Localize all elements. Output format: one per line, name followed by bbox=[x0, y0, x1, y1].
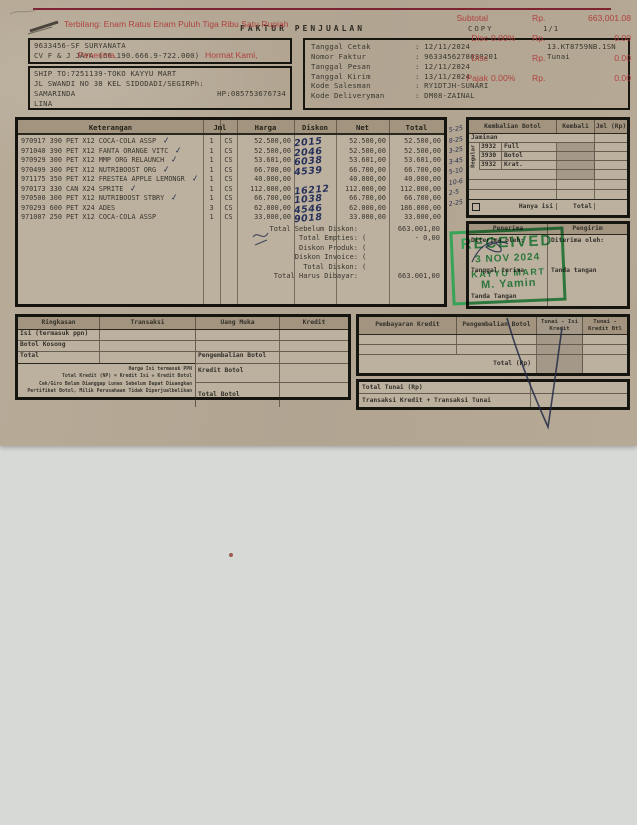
item-row: 971175 350 PET X12 FRESTEA APPLE LEMONGR… bbox=[18, 175, 444, 185]
amount-value: 0.00 bbox=[552, 73, 631, 83]
row-isi: Isi (termasuk ppn) bbox=[18, 330, 100, 340]
item-total: 186.000,00 bbox=[389, 204, 444, 214]
penerima-signoff: Penerima, bbox=[78, 50, 117, 60]
paper-speck bbox=[229, 553, 233, 557]
bottle-col-kembali: Kembali bbox=[557, 120, 595, 133]
item-unit: CS bbox=[220, 166, 237, 176]
items-rows: 970917 390 PET X12 COCA-COLA ASSP✓ 1 CS … bbox=[18, 137, 444, 223]
item-unit: CS bbox=[220, 156, 237, 166]
bottle-code: 3932 bbox=[480, 143, 502, 151]
amount-row: Pajak 0.00% Rp. 0.00 bbox=[428, 73, 633, 93]
totals-line: Diskon Invoice: ( bbox=[18, 253, 444, 263]
ringkasan-header: Ringkasan bbox=[18, 317, 100, 329]
handwritten-check: ✓ bbox=[162, 136, 171, 147]
item-row: 971040 390 PET X12 FANTA ORANGE VITC✓ 1 … bbox=[18, 147, 444, 157]
item-qty: 1 bbox=[203, 156, 220, 166]
item-row: 970500 300 PET X12 NUTRIBOOST STBRY✓ 1 C… bbox=[18, 194, 444, 204]
handwritten-check: ✓ bbox=[191, 174, 200, 185]
item-discount: 4539 bbox=[294, 166, 336, 176]
item-qty: 1 bbox=[203, 147, 220, 157]
item-unit: CS bbox=[220, 213, 237, 223]
bottle-row: 3930 Botol bbox=[480, 152, 627, 161]
col-net: Net bbox=[336, 120, 389, 133]
item-discount: 1038 bbox=[294, 194, 336, 204]
regular-group: Regular bbox=[469, 143, 480, 170]
item-qty: 1 bbox=[203, 185, 220, 195]
item-qty: 1 bbox=[203, 175, 220, 185]
col-total: Total bbox=[389, 120, 444, 133]
item-discount: 6038 bbox=[294, 156, 336, 166]
total-tunai-label: Total Tunai (Rp) bbox=[359, 382, 531, 393]
handwritten-check: ✓ bbox=[170, 155, 179, 166]
bottle-code: 3932 bbox=[480, 161, 502, 169]
item-total: 40.000,00 bbox=[389, 175, 444, 185]
item-row: 970929 300 PET X12 MMP ORG RELAUNCH✓ 1 C… bbox=[18, 156, 444, 166]
fine-print-line: Harga Isi termasuk PPN bbox=[18, 366, 192, 373]
item-price: 62.000,00 bbox=[237, 204, 294, 214]
col-diskon: Diskon bbox=[294, 120, 336, 133]
ship-phone: HP:085753676734 bbox=[217, 89, 286, 99]
footer-rule bbox=[33, 8, 611, 10]
bottle-name: Full bbox=[502, 143, 557, 151]
stamp-date: 3 NOV 2024 bbox=[453, 251, 561, 267]
bottle-col-kembalian: Kembalian Botol bbox=[469, 120, 557, 133]
items-table: Keterangan Jml Harga Diskon Net Total 97… bbox=[15, 117, 447, 307]
item-qty: 1 bbox=[203, 194, 220, 204]
item-description: 970499 300 PET X12 NUTRIBOOST ORG✓ bbox=[18, 166, 203, 176]
totals-line: Total Sebelum Diskon: 663.001,00 bbox=[18, 225, 444, 235]
item-price: 52.500,00 bbox=[237, 137, 294, 147]
totals-value: - 0,00 bbox=[370, 234, 440, 244]
stamp-received: RECEIVED bbox=[453, 232, 562, 254]
item-price: 112.000,00 bbox=[237, 185, 294, 195]
item-qty: 1 bbox=[203, 166, 220, 176]
item-total: 66.700,00 bbox=[389, 166, 444, 176]
handwritten-check: ✓ bbox=[130, 184, 139, 195]
totals-line: Total Diskon: ( bbox=[18, 263, 444, 273]
kredit-header: Kredit bbox=[280, 317, 348, 329]
handwritten-check: ✓ bbox=[170, 193, 179, 204]
bottle-total-label: Total bbox=[557, 203, 595, 211]
item-description: 970929 300 PET X12 MMP ORG RELAUNCH✓ bbox=[18, 156, 203, 166]
amount-row: Disc 0.00% Rp. 0.00 bbox=[428, 33, 633, 53]
item-price: 66.700,00 bbox=[237, 166, 294, 176]
tunai-btl-header: Tunai - Kredit Btl bbox=[583, 317, 627, 334]
totals-label: Total Sebelum Diskon: bbox=[18, 225, 358, 235]
item-row: 970173 330 CAN X24 SPRITE✓ 1 CS 112.000,… bbox=[18, 185, 444, 195]
item-unit: CS bbox=[220, 204, 237, 214]
amount-value: 0.00 bbox=[552, 33, 631, 43]
item-description: 971007 250 PET X12 COCA-COLA ASSP bbox=[18, 213, 203, 223]
amount-label: Disc bbox=[428, 33, 488, 43]
item-net: 52.500,00 bbox=[336, 147, 389, 157]
item-net: 62.000,00 bbox=[336, 204, 389, 214]
amount-label: Disc bbox=[428, 53, 488, 63]
item-total: 33.000,00 bbox=[389, 213, 444, 223]
totals-label: Total Diskon: bbox=[18, 263, 358, 273]
handwritten-discount: 9018 bbox=[294, 213, 323, 225]
bottle-name: Krat. bbox=[502, 161, 557, 169]
printed-footer: Terbilang: Enam Ratus Enam Puluh Tiga Ri… bbox=[0, 0, 633, 88]
totals-line: Diskon Produk: ( bbox=[18, 244, 444, 254]
item-qty: 1 bbox=[203, 137, 220, 147]
transaksi-label: Transaksi Kredit + Transaksi Tunai bbox=[359, 394, 531, 407]
bottle-row: 3932 Krat. bbox=[480, 161, 627, 170]
amount-row: Subtotal Rp. 663,001.08 bbox=[428, 13, 633, 33]
item-discount: 9018 bbox=[294, 213, 336, 223]
item-price: 33.000,00 bbox=[237, 213, 294, 223]
handwritten-note: 2-25 bbox=[448, 197, 467, 210]
row-total: Total bbox=[18, 352, 100, 363]
item-unit: CS bbox=[220, 185, 237, 195]
bottle-code: 3930 bbox=[480, 152, 502, 160]
item-qty: 1 bbox=[203, 213, 220, 223]
item-row: 970917 390 PET X12 COCA-COLA ASSP✓ 1 CS … bbox=[18, 137, 444, 147]
item-unit: CS bbox=[220, 175, 237, 185]
col-keterangan: Keterangan bbox=[18, 120, 203, 133]
item-unit: CS bbox=[220, 137, 237, 147]
item-unit: CS bbox=[220, 194, 237, 204]
footer-amounts: Subtotal Rp. 663,001.08 Disc 0.00% Rp. 0… bbox=[428, 13, 633, 93]
item-price: 52.500,00 bbox=[237, 147, 294, 157]
amount-label: Pajak bbox=[428, 73, 488, 83]
item-description: 970293 600 PET X24 ADES bbox=[18, 204, 203, 214]
fine-print-line: Pertifikat Botol, Milik Perusahaan Tidak… bbox=[18, 388, 192, 395]
amount-row: Disc Rp. 0.00 bbox=[428, 53, 633, 73]
fine-print-line: Total Kredit (NP) = Kredit Isi + Kredit … bbox=[18, 373, 192, 380]
hanya-isi-label: Hanya isi bbox=[481, 203, 557, 211]
credit-box: Pembayaran Kredit Pengembalian Botol Tun… bbox=[356, 314, 630, 376]
totals-label: Diskon Produk: bbox=[18, 244, 358, 254]
bottle-footer: Hanya isi Total bbox=[469, 200, 627, 213]
item-description: 970917 390 PET X12 COCA-COLA ASSP✓ bbox=[18, 137, 203, 147]
amount-value: 0.00 bbox=[552, 53, 631, 63]
totals-block: Total Sebelum Diskon: 663.001,00 Total E… bbox=[18, 225, 444, 282]
item-total: 53.601,00 bbox=[389, 156, 444, 166]
item-net: 66.700,00 bbox=[336, 166, 389, 176]
item-net: 66.700,00 bbox=[336, 194, 389, 204]
totals-label: Total Empties: bbox=[18, 234, 358, 244]
pengembalian-header: Pengembalian Botol bbox=[457, 317, 537, 334]
item-description: 971175 350 PET X12 FRESTEA APPLE LEMONGR… bbox=[18, 175, 203, 185]
transaksi-header: Transaksi bbox=[100, 317, 196, 329]
item-price: 40.000,00 bbox=[237, 175, 294, 185]
amount-percent: 0.00% bbox=[491, 33, 525, 43]
item-net: 40.000,00 bbox=[336, 175, 389, 185]
item-unit: CS bbox=[220, 147, 237, 157]
totals-label: Total Harus Dibayar: bbox=[18, 272, 358, 282]
fine-print-line: Cek/Giro Belum Dianggap Lunas Sebelum Da… bbox=[18, 381, 192, 388]
total-rp-label: Total (Rp) bbox=[359, 355, 537, 373]
item-discount: 2015 bbox=[294, 137, 336, 147]
amount-value: 663,001.08 bbox=[552, 13, 631, 23]
totals-line: Total Harus Dibayar: 663.001,00 bbox=[18, 272, 444, 282]
fine-print: Harga Isi termasuk PPNTotal Kredit (NP) … bbox=[18, 364, 195, 407]
totals-value: 663.001,00 bbox=[370, 225, 440, 235]
pembayaran-kredit-header: Pembayaran Kredit bbox=[359, 317, 457, 334]
item-description: 970500 300 PET X12 NUTRIBOOST STBRY✓ bbox=[18, 194, 203, 204]
totals-value: 663.001,00 bbox=[370, 272, 440, 282]
total-tunai-box: Total Tunai (Rp) Transaksi Kredit + Tran… bbox=[356, 379, 630, 410]
handwritten-check: ✓ bbox=[162, 165, 171, 176]
total-botol-label: Total Botol bbox=[196, 383, 280, 407]
info-label: Kode Deliveryman bbox=[311, 91, 415, 101]
totals-label: Diskon Invoice: bbox=[18, 253, 358, 263]
totals-line: Total Empties: ( - 0,00 bbox=[18, 234, 444, 244]
amount-label: Subtotal bbox=[428, 13, 488, 23]
amount-percent: 0.00% bbox=[491, 73, 525, 83]
bottle-rows: 3932 Full 3930 Botol 3932 bbox=[480, 143, 627, 170]
item-price: 66.700,00 bbox=[237, 194, 294, 204]
margin-scribbles: 5-258-253-253-455-1010-62-52-25 bbox=[449, 126, 467, 210]
bottle-col-jml: Jml (Rp) bbox=[595, 120, 627, 133]
kredit-botol-label: Kredit Botol bbox=[196, 364, 280, 382]
item-qty: 3 bbox=[203, 204, 220, 214]
summary-box: Ringkasan Transaksi Uang Muka Kredit Isi… bbox=[15, 314, 351, 400]
item-row: 970499 300 PET X12 NUTRIBOOST ORG✓ 1 CS … bbox=[18, 166, 444, 176]
bottle-row: 3932 Full bbox=[480, 143, 627, 152]
row-botol-kosong: Botol Kosong bbox=[18, 341, 100, 351]
terbilang-line: Terbilang: Enam Ratus Enam Puluh Tiga Ri… bbox=[64, 19, 289, 29]
ship-note: LINA bbox=[34, 99, 286, 109]
items-table-header: Keterangan Jml Harga Diskon Net Total bbox=[18, 120, 444, 135]
item-price: 53.601,00 bbox=[237, 156, 294, 166]
tunai-isi-header: Tunai - Isi Kredit bbox=[537, 317, 583, 334]
bottle-name: Botol bbox=[502, 152, 557, 160]
item-total: 112.000,00 bbox=[389, 185, 444, 195]
item-total: 66.700,00 bbox=[389, 194, 444, 204]
hormat-kami-signoff: Hormat Kami, bbox=[205, 50, 258, 60]
item-net: 52.500,00 bbox=[336, 137, 389, 147]
checkbox bbox=[472, 203, 480, 211]
item-discount bbox=[294, 175, 336, 185]
item-total: 52.500,00 bbox=[389, 147, 444, 157]
uang-muka-header: Uang Muka bbox=[196, 317, 280, 329]
bottle-panel: Kembalian Botol Kembali Jml (Rp) Jaminan… bbox=[466, 117, 630, 218]
item-total: 52.500,00 bbox=[389, 137, 444, 147]
item-row: 971007 250 PET X12 COCA-COLA ASSP 1 CS 3… bbox=[18, 213, 444, 223]
pengembalian-botol-label: Pengembalian Botol bbox=[196, 352, 280, 363]
item-row: 970293 600 PET X24 ADES 3 CS 62.000,00 4… bbox=[18, 204, 444, 214]
item-net: 112.000,00 bbox=[336, 185, 389, 195]
col-harga: Harga bbox=[237, 120, 294, 133]
received-stamp: RECEIVED 3 NOV 2024 KAYYU MART M. Yamin bbox=[449, 227, 566, 306]
item-net: 53.601,00 bbox=[336, 156, 389, 166]
jaminan-label: Jaminan bbox=[469, 134, 595, 142]
item-net: 33.000,00 bbox=[336, 213, 389, 223]
ship-city: SAMARINDA bbox=[34, 89, 75, 99]
